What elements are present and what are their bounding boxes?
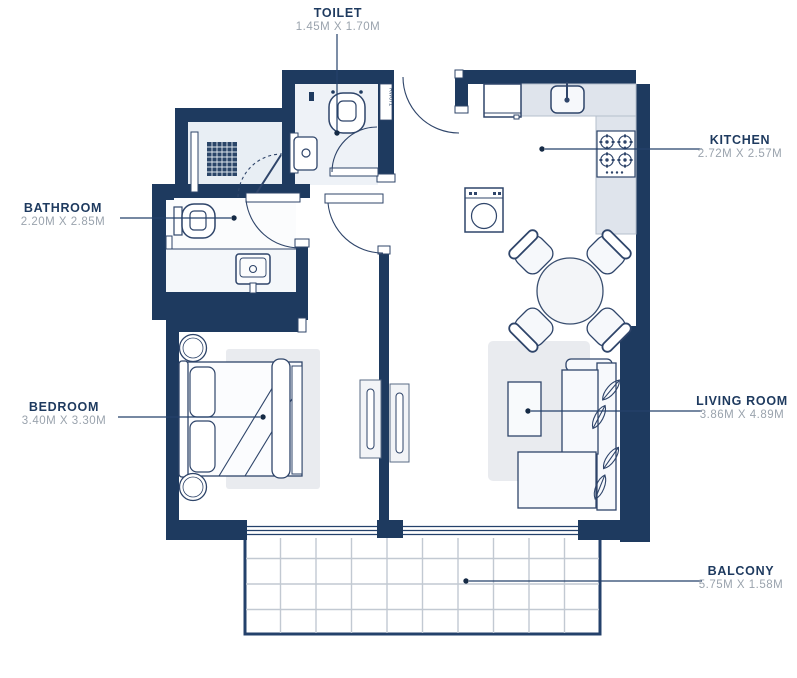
stove-hob <box>597 131 635 177</box>
floor-plan-page: RW071 <box>0 0 797 678</box>
shower-drain <box>207 142 237 176</box>
bathroom-toilet-fixture <box>174 204 215 238</box>
water-valve <box>309 92 314 101</box>
bathroom-label-title: BATHROOM <box>21 201 105 215</box>
bathroom-label-dims: 2.20M X 2.85M <box>21 216 105 229</box>
wall-basin <box>290 133 317 173</box>
pillow <box>190 367 215 417</box>
towel-holder <box>166 236 172 249</box>
living-room-label-title: LIVING ROOM <box>696 394 788 408</box>
toilet-label-title: TOILET <box>296 6 380 20</box>
washing-machine <box>465 188 503 232</box>
kitchen-label-title: KITCHEN <box>698 133 782 147</box>
shaft-label-text: RW071 <box>388 88 394 106</box>
toilet-fixture <box>329 90 365 133</box>
balcony-label-title: BALCONY <box>699 564 783 578</box>
balcony-label: BALCONY 5.75M X 1.58M <box>699 564 783 592</box>
dining-table <box>537 258 603 324</box>
tv-console-bedroom <box>360 380 381 458</box>
bathroom-tap <box>166 192 174 200</box>
dining-set <box>507 228 633 354</box>
bathroom-vanity-zone <box>166 249 296 292</box>
pillow <box>190 421 215 472</box>
sliding-doors <box>247 523 578 538</box>
shower-shelf <box>191 132 198 192</box>
balcony-label-dims: 5.75M X 1.58M <box>699 579 783 592</box>
bathroom-label: BATHROOM 2.20M X 2.85M <box>21 201 105 229</box>
bed-foot-panel <box>292 366 302 474</box>
toilet-label-dims: 1.45M X 1.70M <box>296 21 380 34</box>
bedroom-label-dims: 3.40M X 3.30M <box>22 415 106 428</box>
living-room-door <box>325 194 383 253</box>
bedroom-label-title: BEDROOM <box>22 400 106 414</box>
fridge <box>484 84 521 119</box>
headboard <box>179 361 188 477</box>
bed-foot-bench <box>272 359 290 478</box>
tv-console-living <box>390 384 409 462</box>
bedside-table <box>180 335 207 362</box>
bedroom-label: BEDROOM 3.40M X 3.30M <box>22 400 106 428</box>
balcony-area <box>245 533 600 634</box>
service-shaft: RW071 <box>380 84 394 120</box>
living-room-label: LIVING ROOM 3.86M X 4.89M <box>696 394 788 422</box>
kitchen <box>403 77 636 234</box>
entrance-door <box>403 77 459 133</box>
bedside-table <box>180 474 207 501</box>
kitchen-label: KITCHEN 2.72M X 2.57M <box>698 133 782 161</box>
kitchen-sink <box>551 82 584 113</box>
living-room-label-dims: 3.86M X 4.89M <box>696 409 788 422</box>
floor-plan-drawing: RW071 <box>0 0 797 678</box>
kitchen-label-dims: 2.72M X 2.57M <box>698 148 782 161</box>
toilet-label: TOILET 1.45M X 1.70M <box>296 6 380 34</box>
coffee-table <box>508 382 541 436</box>
